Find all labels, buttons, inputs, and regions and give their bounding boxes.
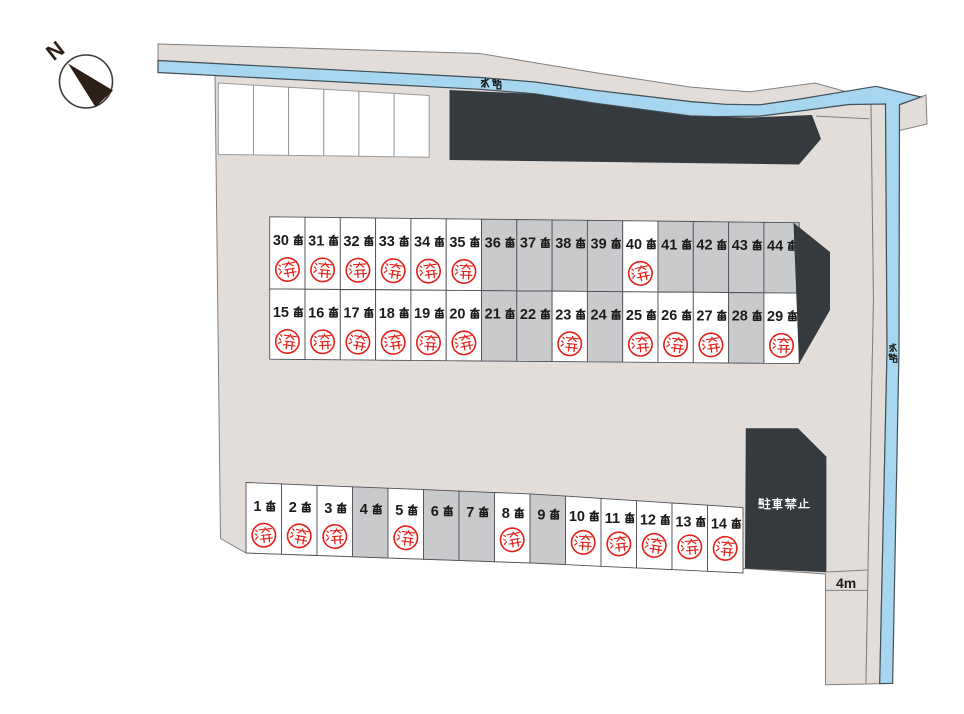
svg-text:38: 38 bbox=[555, 236, 571, 252]
svg-text:43: 43 bbox=[732, 238, 748, 254]
svg-text:26: 26 bbox=[661, 308, 677, 324]
svg-text:8: 8 bbox=[502, 506, 510, 522]
svg-text:24: 24 bbox=[591, 308, 607, 324]
svg-text:16: 16 bbox=[308, 305, 324, 321]
svg-text:36: 36 bbox=[485, 235, 501, 251]
svg-text:11: 11 bbox=[605, 511, 620, 527]
svg-text:39: 39 bbox=[591, 237, 607, 253]
svg-text:19: 19 bbox=[414, 306, 430, 322]
svg-text:9: 9 bbox=[537, 507, 545, 523]
svg-text:4m: 4m bbox=[836, 575, 856, 591]
svg-text:13: 13 bbox=[675, 515, 691, 531]
svg-text:37: 37 bbox=[520, 236, 536, 252]
svg-text:23: 23 bbox=[555, 307, 571, 323]
svg-text:7: 7 bbox=[466, 505, 474, 521]
svg-text:15: 15 bbox=[273, 305, 289, 321]
svg-text:6: 6 bbox=[431, 504, 439, 520]
svg-text:28: 28 bbox=[732, 309, 748, 325]
svg-text:1: 1 bbox=[253, 499, 261, 515]
svg-text:44: 44 bbox=[767, 239, 783, 255]
svg-text:22: 22 bbox=[520, 307, 536, 323]
svg-text:12: 12 bbox=[640, 513, 656, 529]
svg-text:21: 21 bbox=[485, 307, 501, 323]
svg-text:5: 5 bbox=[395, 503, 403, 519]
svg-text:29: 29 bbox=[767, 309, 783, 325]
svg-text:2: 2 bbox=[289, 500, 297, 516]
svg-text:34: 34 bbox=[414, 235, 430, 251]
svg-text:18: 18 bbox=[379, 306, 395, 322]
svg-text:20: 20 bbox=[449, 306, 465, 322]
svg-text:41: 41 bbox=[661, 237, 677, 253]
svg-text:42: 42 bbox=[696, 238, 712, 254]
svg-text:3: 3 bbox=[324, 501, 332, 517]
svg-text:33: 33 bbox=[379, 234, 395, 250]
svg-text:17: 17 bbox=[343, 306, 359, 322]
svg-text:14: 14 bbox=[711, 516, 727, 532]
svg-text:35: 35 bbox=[449, 235, 465, 251]
svg-text:32: 32 bbox=[343, 234, 359, 250]
svg-text:27: 27 bbox=[696, 308, 712, 324]
svg-text:25: 25 bbox=[626, 308, 642, 324]
svg-text:40: 40 bbox=[626, 237, 642, 253]
svg-text:31: 31 bbox=[308, 233, 324, 249]
svg-text:4: 4 bbox=[360, 502, 368, 518]
svg-text:30: 30 bbox=[273, 233, 289, 249]
svg-text:10: 10 bbox=[569, 509, 585, 525]
